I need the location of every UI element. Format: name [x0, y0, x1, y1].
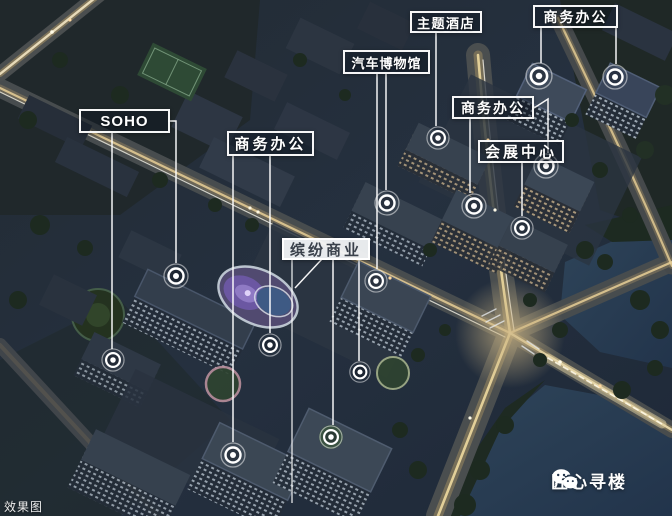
wechat-icon [551, 468, 581, 496]
label-expo-center: 会展中心 [478, 140, 564, 163]
label-car-museum: 汽车博物馆 [343, 50, 430, 74]
label-soho: SOHO [79, 109, 170, 133]
label-theme-hotel: 主题酒店 [410, 11, 482, 33]
label-business-office-mid-right: 商务办公 [452, 96, 534, 119]
label-colorful-commerce: 缤纷商业 [282, 238, 370, 260]
label-business-office-top-right: 商务办公 [533, 5, 618, 28]
leader-lines [112, 27, 616, 503]
label-business-office-mid-left: 商务办公 [227, 131, 314, 156]
watermark-text: 效果图 [4, 498, 43, 515]
brand-badge: 匠心寻楼 [551, 468, 627, 493]
rendering-image: SOHO 商务办公 汽车博物馆 主题酒店 商务办公 商务办公 会展中心 缤纷商业… [0, 0, 672, 516]
